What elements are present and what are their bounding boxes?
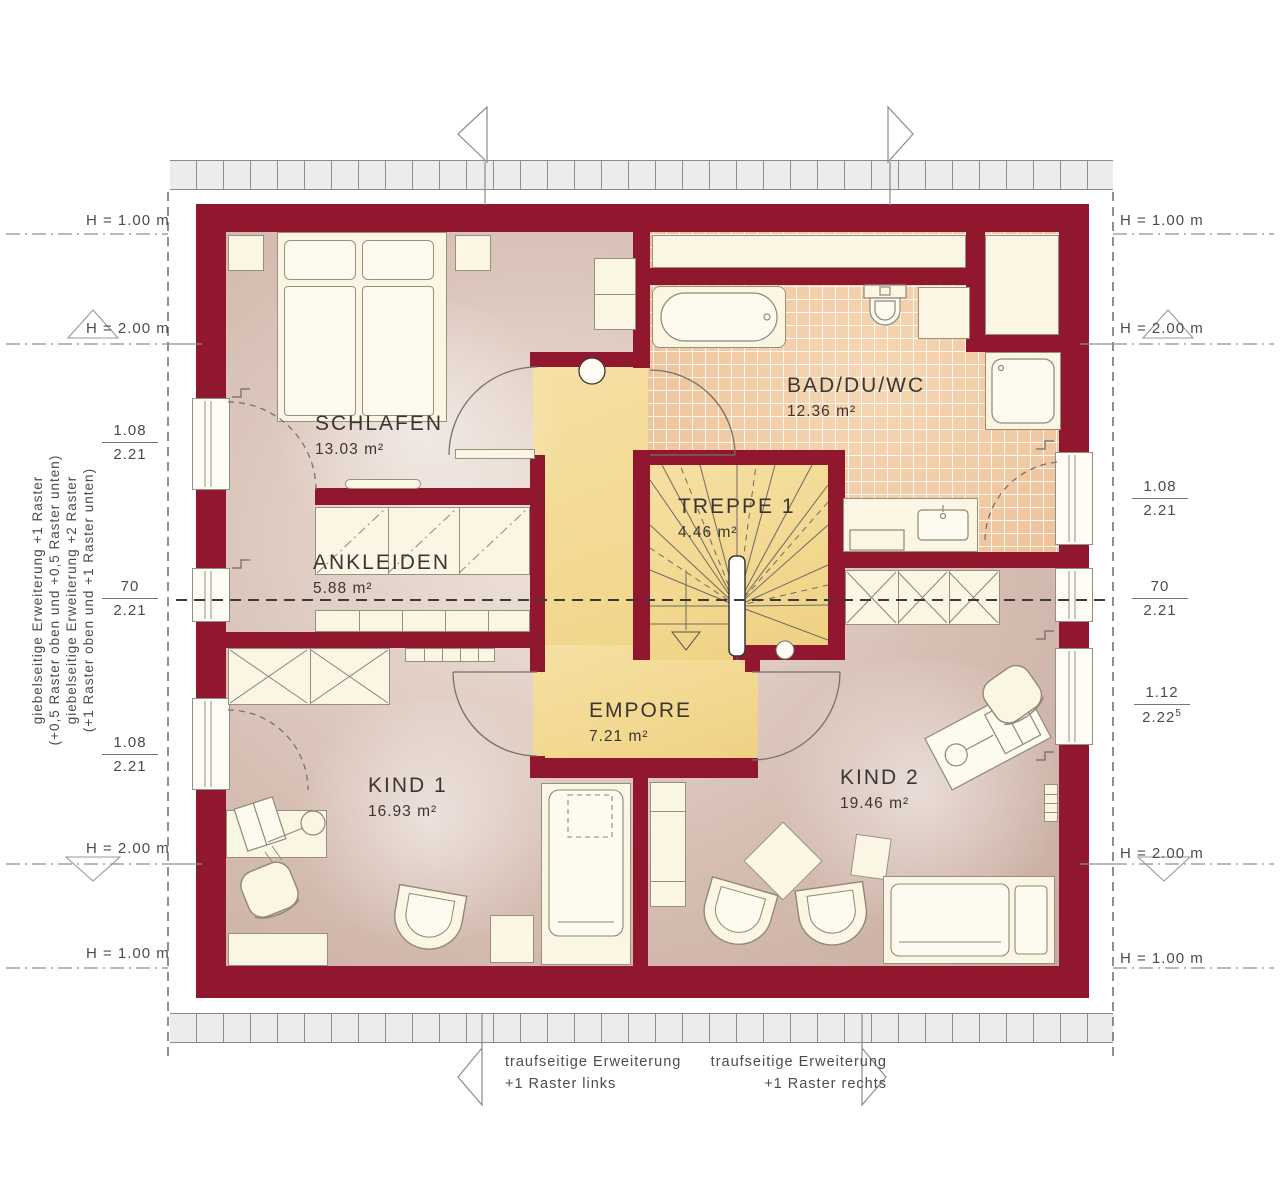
note-line: (+1 Raster oben und +1 Raster unten) [80,370,97,830]
dim-value: 2.21 [102,443,158,463]
eave-extension-note-left: traufseitige Erweiterung +1 Raster links [505,1051,681,1095]
dim-right-h-top2: H = 2.00 m [1120,320,1204,337]
gable-extension-note: giebelseitige Erweiterung +1 Raster (+0,… [29,370,97,830]
note-line: giebelseitige Erweiterung +2 Raster [63,370,80,830]
bed-details [549,790,1047,956]
desk-kind1-detail [234,797,325,866]
dim-left-h-bottom2: H = 2.00 m [86,840,170,857]
room-name: SCHLAFEN [315,412,443,436]
room-name: TREPPE 1 [678,495,796,519]
note-line: traufseitige Erweiterung [505,1051,681,1073]
dim-right-window3: 1.12 2.225 [1134,684,1190,726]
dim-left-h-top1: H = 1.00 m [86,212,170,229]
column [579,358,605,384]
dim-value: 2.21 [102,599,158,619]
plan-linework [0,0,1280,1200]
room-name: KIND 1 [368,774,448,798]
armchair [696,877,778,952]
note-line: +1 Raster rechts [703,1073,887,1095]
room-label-empore: EMPORE 7.21 m² [589,699,692,746]
dim-left-window2: 70 2.21 [102,578,158,619]
note-line: (+0,5 Raster oben und +0,5 Raster unten) [46,370,63,830]
room-label-schlafen: SCHLAFEN 13.03 m² [315,412,443,459]
note-line: giebelseitige Erweiterung +1 Raster [29,370,46,830]
dim-left-h-top2: H = 2.00 m [86,320,170,337]
room-area: 7.21 m² [589,728,692,746]
floor-plan-canvas: SCHLAFEN 13.03 m² ANKLEIDEN 5.88 m² BAD/… [0,0,1280,1200]
armchair [795,882,871,950]
dim-value: 2.225 [1134,705,1190,726]
room-label-treppe: TREPPE 1 4.46 m² [678,495,796,542]
dim-value: 1.08 [102,422,158,443]
room-area: 12.36 m² [787,403,925,421]
note-line: traufseitige Erweiterung [703,1051,887,1073]
note-line: +1 Raster links [505,1073,681,1095]
eave-extension-note-right: traufseitige Erweiterung +1 Raster recht… [703,1051,887,1095]
room-name: KIND 2 [840,766,920,790]
dim-left-window3: 1.08 2.21 [102,734,158,775]
desk-chair [236,858,303,924]
room-label-kind1: KIND 1 16.93 m² [368,774,448,821]
dim-value: 2.21 [1132,499,1188,519]
armchair [389,885,466,955]
dim-value: 70 [1132,578,1188,599]
room-label-bad: BAD/DU/WC 12.36 m² [787,374,925,421]
room-name: ANKLEIDEN [313,551,450,575]
dim-left-h-bottom1: H = 1.00 m [86,945,170,962]
dim-left-window1: 1.08 2.21 [102,422,158,463]
room-area: 13.03 m² [315,441,443,459]
room-name: BAD/DU/WC [787,374,925,398]
dim-right-h-top1: H = 1.00 m [1120,212,1204,229]
room-area: 19.46 m² [840,795,920,813]
dim-value: 1.08 [102,734,158,755]
room-label-ankleiden: ANKLEIDEN 5.88 m² [313,551,450,598]
dim-right-window2: 70 2.21 [1132,578,1188,619]
wardrobe-marks [230,509,998,703]
room-area: 16.93 m² [368,803,448,821]
dim-value: 2.21 [102,755,158,775]
dim-right-window1: 1.08 2.21 [1132,478,1188,519]
dim-value: 1.12 [1134,684,1190,705]
dim-value: 1.08 [1132,478,1188,499]
dim-value: 2.21 [1132,599,1188,619]
room-name: EMPORE [589,699,692,723]
dim-right-h-bottom2: H = 2.00 m [1120,845,1204,862]
dim-value: 70 [102,578,158,599]
reference-lines [6,192,1274,1062]
room-label-kind2: KIND 2 19.46 m² [840,766,920,813]
dim-right-h-bottom1: H = 1.00 m [1120,950,1204,967]
room-area: 5.88 m² [313,580,450,598]
room-area: 4.46 m² [678,524,796,542]
